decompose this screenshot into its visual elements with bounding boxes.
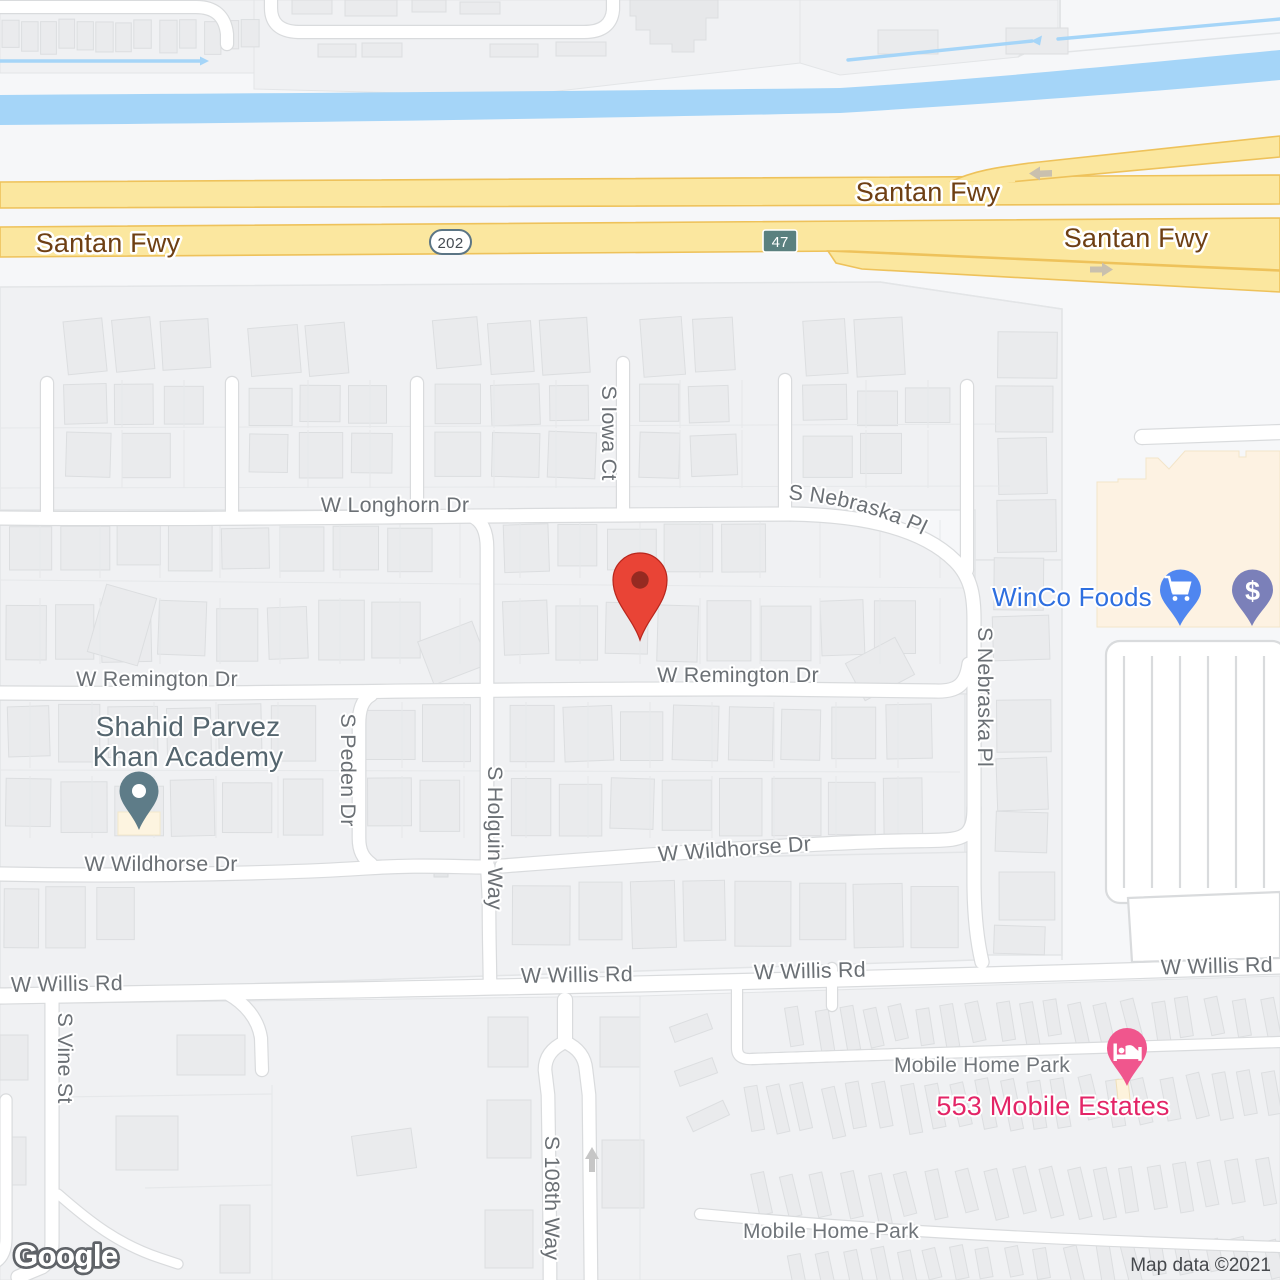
svg-text:553 Mobile Estates: 553 Mobile Estates bbox=[936, 1091, 1169, 1121]
svg-text:Google: Google bbox=[14, 1238, 118, 1273]
svg-text:W Longhorn Dr: W Longhorn Dr bbox=[321, 493, 469, 517]
svg-text:Mobile Home Park: Mobile Home Park bbox=[743, 1220, 919, 1243]
svg-text:WinCo Foods: WinCo Foods bbox=[992, 582, 1152, 612]
svg-text:S 108th Way: S 108th Way bbox=[540, 1136, 564, 1261]
svg-text:Map data ©2021: Map data ©2021 bbox=[1130, 1255, 1271, 1276]
svg-text:202: 202 bbox=[438, 235, 464, 252]
svg-text:S Peden Dr: S Peden Dr bbox=[336, 713, 360, 826]
svg-text:Santan Fwy: Santan Fwy bbox=[36, 228, 181, 258]
svg-text:W Willis Rd: W Willis Rd bbox=[521, 962, 633, 988]
svg-text:W Remington Dr: W Remington Dr bbox=[657, 663, 819, 687]
svg-text:S Holguin Way: S Holguin Way bbox=[483, 766, 507, 910]
svg-text:W Willis Rd: W Willis Rd bbox=[753, 958, 866, 985]
svg-text:Santan Fwy: Santan Fwy bbox=[856, 177, 1001, 207]
svg-text:Santan Fwy: Santan Fwy bbox=[1064, 223, 1209, 253]
svg-text:S Vine St: S Vine St bbox=[53, 1012, 77, 1103]
svg-text:S Iowa Ct: S Iowa Ct bbox=[597, 385, 621, 480]
svg-text:Khan Academy: Khan Academy bbox=[93, 741, 284, 772]
svg-text:W Remington Dr: W Remington Dr bbox=[76, 667, 238, 691]
svg-text:Shahid Parvez: Shahid Parvez bbox=[96, 711, 281, 742]
svg-text:$: $ bbox=[1245, 576, 1260, 606]
svg-text:47: 47 bbox=[772, 234, 789, 251]
svg-text:Mobile Home Park: Mobile Home Park bbox=[894, 1054, 1070, 1077]
svg-text:W Willis Rd: W Willis Rd bbox=[1160, 953, 1273, 980]
svg-text:W Wildhorse Dr: W Wildhorse Dr bbox=[84, 852, 237, 876]
svg-text:S Nebraska Pl: S Nebraska Pl bbox=[973, 627, 997, 767]
svg-text:W Willis Rd: W Willis Rd bbox=[11, 971, 123, 997]
